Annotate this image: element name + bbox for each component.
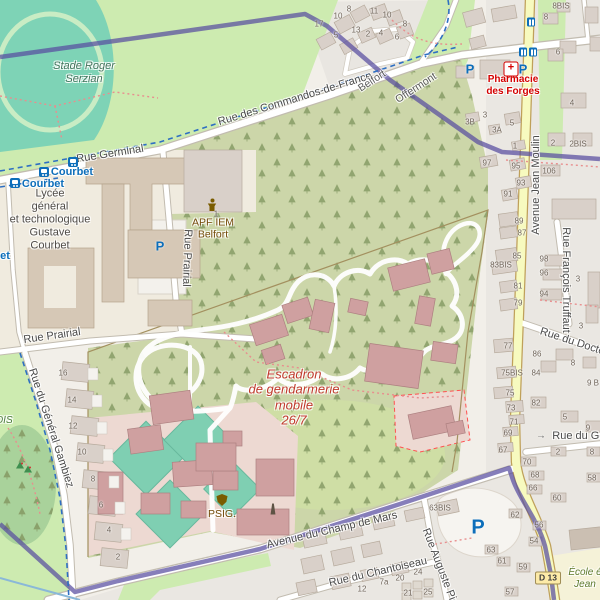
apf-label-line: Belfort xyxy=(192,229,234,241)
street-label: Avenue Jean Moulin xyxy=(530,135,542,234)
house-number: 86 xyxy=(533,350,542,359)
house-number: 8 xyxy=(571,359,575,368)
house-number: 3 xyxy=(483,111,487,120)
house-number: 10 xyxy=(383,11,392,20)
house-number: 3B xyxy=(465,118,475,127)
escadron-label-line: de gendarmerie xyxy=(248,382,339,397)
parking-icon: P xyxy=(466,62,475,77)
house-number: 10 xyxy=(78,448,87,457)
bus-icon xyxy=(527,18,535,27)
transit-stop-label: Courbet xyxy=(51,166,93,178)
bus-icon xyxy=(529,48,537,57)
tram-icon xyxy=(39,167,49,177)
house-number: 106 xyxy=(542,167,555,176)
house-number: 8 xyxy=(91,475,95,484)
lycee-label-line: et technologique xyxy=(10,214,91,227)
tram-icon xyxy=(68,157,78,167)
house-number: 81 xyxy=(514,282,523,291)
house-number: 62 xyxy=(511,511,520,520)
ecole-label-line: Jean xyxy=(568,579,600,591)
house-number: 66 xyxy=(529,484,538,493)
stade-label-line: Stade Roger xyxy=(53,60,115,73)
ecole-label-line: École é xyxy=(568,567,600,579)
apf-label: APF IEMBelfort xyxy=(192,217,234,242)
house-number: 61 xyxy=(498,557,507,566)
escadron-label-line: 26/7 xyxy=(248,412,339,427)
parking-icon: P xyxy=(519,62,528,77)
house-number: 75 xyxy=(506,389,515,398)
house-number: 17 xyxy=(315,20,324,29)
house-number: 96 xyxy=(540,269,549,278)
lycee-label-line: Courbet xyxy=(10,239,91,252)
stade-label-line: Serzian xyxy=(53,73,115,86)
psig-label: PSIG. xyxy=(208,508,236,520)
house-number: 98 xyxy=(540,255,549,264)
house-number: 2 xyxy=(116,553,120,562)
house-number: 6 xyxy=(395,33,399,42)
bois-label-line: OIS xyxy=(0,415,13,427)
house-number: 12 xyxy=(69,422,78,431)
house-number: 16 xyxy=(59,369,68,378)
escadron-label-line: Escadron xyxy=(248,366,339,381)
stade-label: Stade RogerSerzian xyxy=(53,60,115,86)
house-number: 10 xyxy=(334,12,343,21)
house-number: 58 xyxy=(588,474,597,483)
transit-stop-label: et xyxy=(0,250,10,262)
house-number: 8BIS xyxy=(552,2,569,11)
lycee-label-line: Gustave xyxy=(10,226,91,239)
house-number: 4 xyxy=(379,29,383,38)
street-label: Rue François Truffaut xyxy=(560,227,572,333)
house-number: 8 xyxy=(544,13,548,22)
house-number: 77 xyxy=(504,342,513,351)
tram-icon xyxy=(10,178,20,188)
house-number: 20 xyxy=(396,574,405,583)
house-number: 97 xyxy=(483,159,492,168)
street-label: Rue du Géné xyxy=(552,430,600,442)
house-number: 83BIS xyxy=(490,261,512,270)
house-number: 70 xyxy=(523,458,532,467)
house-number: 12 xyxy=(358,585,367,594)
badge-icon: D 13 xyxy=(535,572,561,585)
house-number: 4 xyxy=(107,526,111,535)
house-number: 84 xyxy=(532,369,541,378)
house-number: 1 xyxy=(513,142,517,151)
house-number: 60 xyxy=(553,494,562,503)
pharmacy-icon: + xyxy=(504,62,519,77)
house-number: 11 xyxy=(370,7,378,16)
house-number: 8 xyxy=(347,5,351,14)
parking-icon: P xyxy=(156,239,165,254)
house-number: 56 xyxy=(535,521,544,530)
house-number: 2 xyxy=(551,139,555,148)
house-number: 2 xyxy=(366,30,370,39)
house-number: 4 xyxy=(570,99,574,108)
house-number: 93 xyxy=(517,179,526,188)
house-number: 79 xyxy=(514,299,523,308)
house-number: 2 xyxy=(556,448,560,457)
lycee-label: Lycéegénéralet technologiqueGustaveCourb… xyxy=(10,188,91,253)
house-number: 8 xyxy=(590,448,594,457)
house-number: 59 xyxy=(519,563,528,572)
house-number: 85 xyxy=(513,252,522,261)
house-number: 91 xyxy=(504,190,513,199)
house-number: 68 xyxy=(531,471,540,480)
house-number: 7a xyxy=(380,578,389,587)
house-number: 5 xyxy=(563,413,567,422)
house-number: 3A xyxy=(492,126,502,135)
house-number: 6 xyxy=(556,48,560,57)
arrow-icon: → xyxy=(536,431,546,442)
house-number: 82 xyxy=(532,399,541,408)
house-number: 3 xyxy=(579,322,583,331)
house-number: 57 xyxy=(506,588,515,597)
house-number: 89 xyxy=(515,217,524,226)
parking-icon: P xyxy=(471,517,484,540)
house-number: 3 xyxy=(576,275,580,284)
house-number: 87 xyxy=(518,229,527,238)
house-number: 21 xyxy=(404,589,413,598)
house-number: 6 xyxy=(99,501,103,510)
house-number: 25 xyxy=(424,588,433,597)
escadron-label-line: mobile xyxy=(248,397,339,412)
house-number: 5 xyxy=(334,31,338,40)
house-number: 9 B xyxy=(587,379,599,388)
house-number: 5 xyxy=(510,119,514,128)
transit-stop-label: Courbet xyxy=(22,178,64,190)
tree-icon xyxy=(24,466,32,475)
house-number: 75BIS xyxy=(501,369,523,378)
house-number: 14 xyxy=(68,396,77,405)
person-icon xyxy=(207,199,218,212)
house-number: 95 xyxy=(512,162,521,171)
ecole-label: École éJean xyxy=(568,567,600,591)
tree-icon xyxy=(16,462,24,471)
house-number: 73 xyxy=(507,404,516,413)
house-number: 63BIS xyxy=(429,504,451,513)
house-number: 54 xyxy=(530,537,539,546)
house-number: 9 xyxy=(586,424,590,433)
escadron-label: Escadronde gendarmeriemobile26/7 xyxy=(248,366,339,427)
house-number: 71 xyxy=(510,418,519,427)
house-number: 94 xyxy=(540,290,549,299)
map-viewport[interactable]: Rue GerminalRue des Commandos-de-FranceB… xyxy=(0,0,600,600)
house-number: 67 xyxy=(499,446,508,455)
pharmacie-label-line: des Forges xyxy=(486,86,539,98)
house-number: 13 xyxy=(352,26,361,35)
pharmacie-label: Pharmaciedes Forges xyxy=(486,74,539,98)
house-number: 69 xyxy=(504,429,513,438)
psig-label-line: PSIG. xyxy=(208,508,236,520)
house-number: 8 xyxy=(403,20,407,29)
house-number: 2BIS xyxy=(569,140,586,149)
bois-label: OIS xyxy=(0,415,13,427)
bus-icon xyxy=(519,48,527,57)
house-number: 63 xyxy=(487,546,496,555)
lycee-label-line: général xyxy=(10,201,91,214)
house-number: 24 xyxy=(414,568,423,577)
